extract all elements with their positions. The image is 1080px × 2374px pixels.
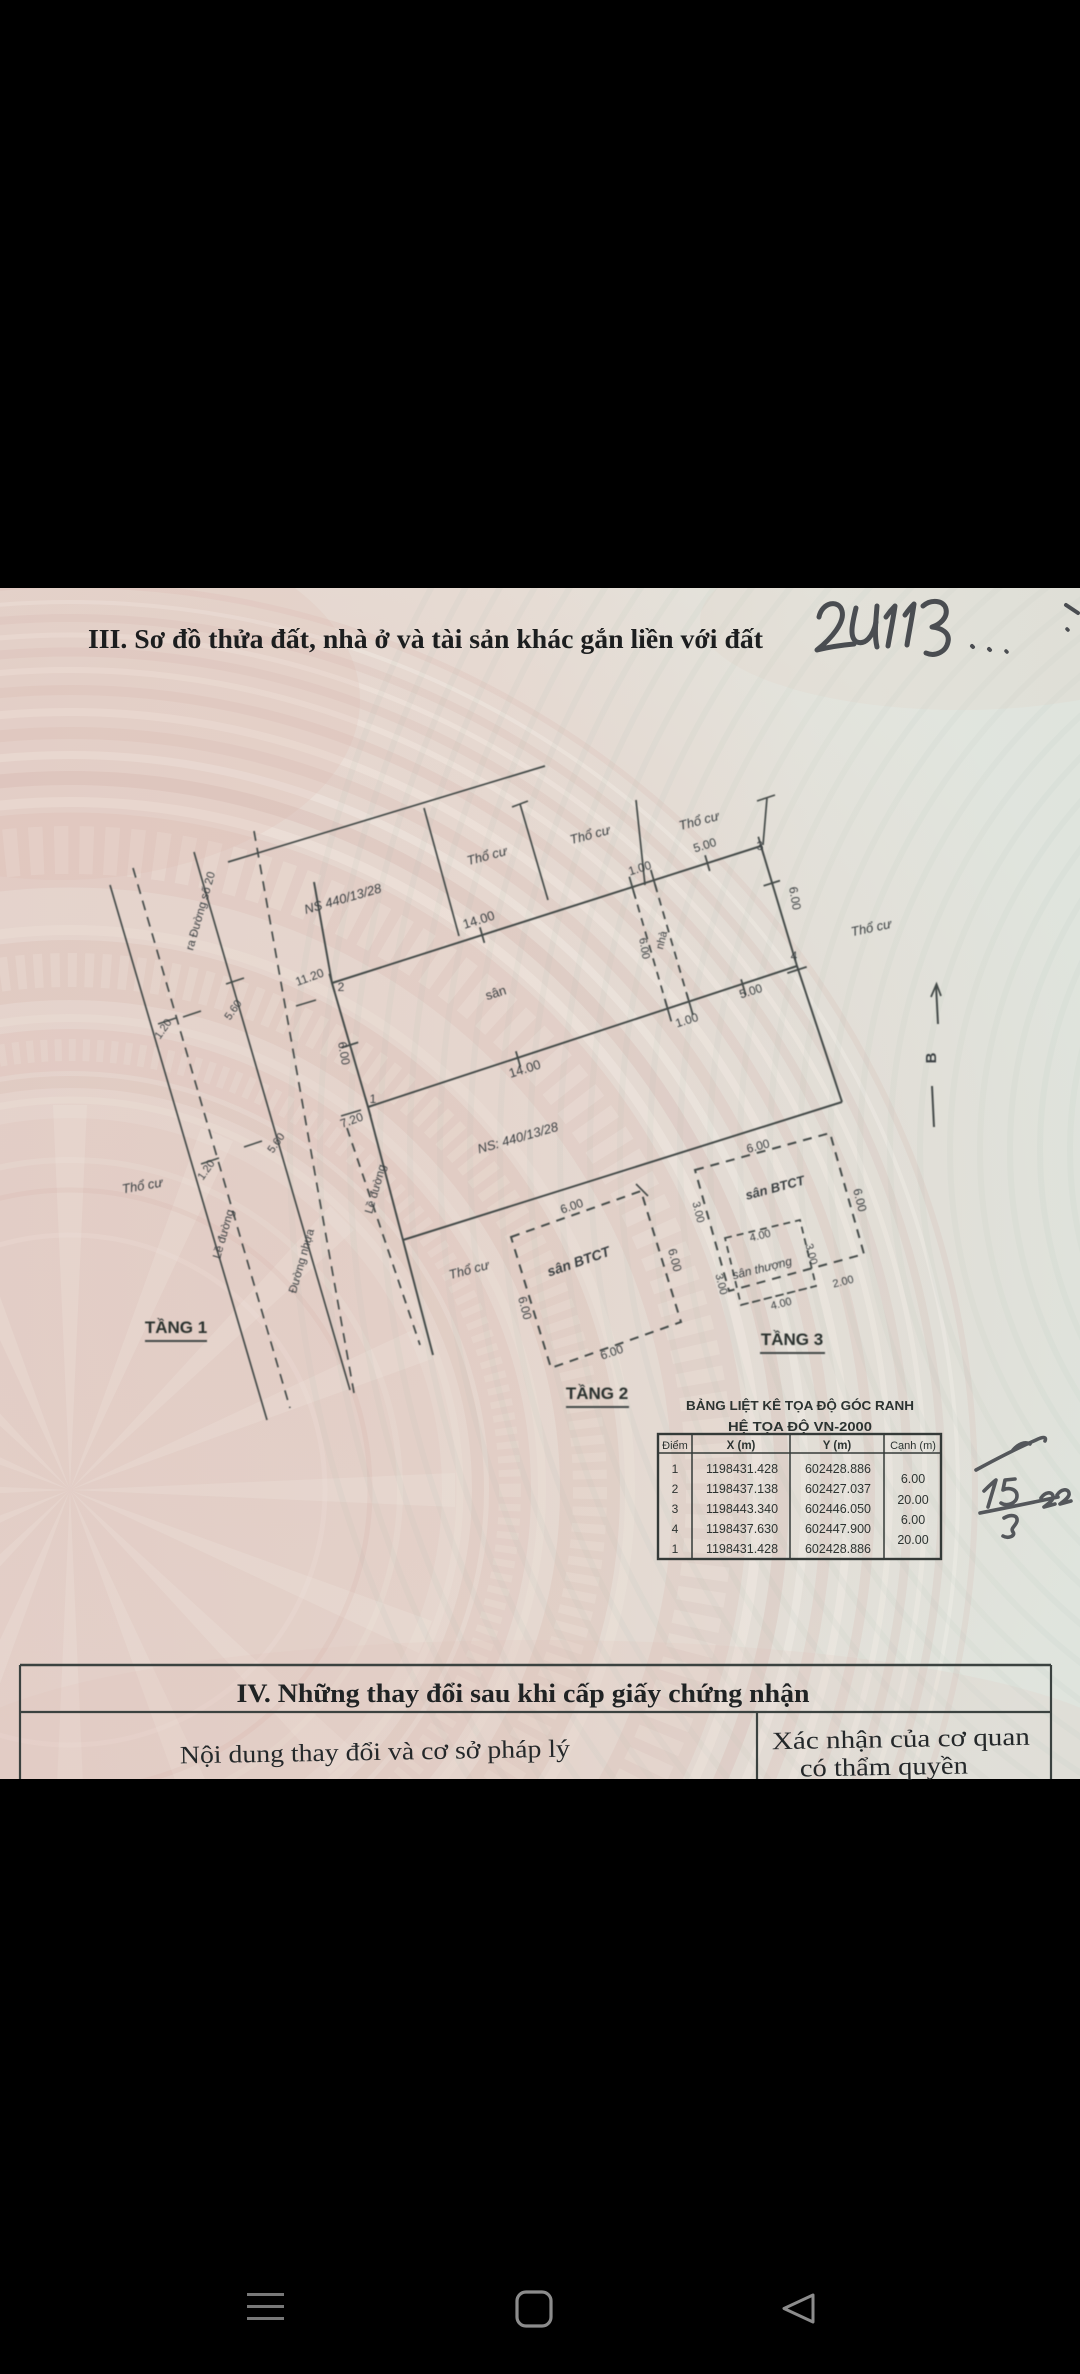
svg-text:6.00: 6.00 (901, 1472, 925, 1486)
svg-text:602428.886: 602428.886 (805, 1542, 871, 1556)
svg-text:III. Sơ đồ thửa đất, nhà ở và: III. Sơ đồ thửa đất, nhà ở và tài sản kh… (88, 624, 763, 654)
svg-text:TẦNG 2: TẦNG 2 (566, 1384, 628, 1403)
svg-text:1: 1 (370, 1092, 377, 1106)
svg-text:3: 3 (757, 839, 764, 853)
svg-text:1198431.428: 1198431.428 (706, 1462, 778, 1476)
svg-text:2: 2 (672, 1482, 679, 1496)
svg-text:có thẩm quyền: có thẩm quyền (800, 1753, 969, 1783)
svg-text:1198437.138: 1198437.138 (706, 1482, 778, 1496)
svg-text:HỆ TỌA ĐỘ VN-2000: HỆ TỌA ĐỘ VN-2000 (728, 1419, 872, 1434)
svg-text:4: 4 (791, 949, 798, 963)
svg-text:1198443.340: 1198443.340 (706, 1502, 778, 1516)
svg-text:602446.050: 602446.050 (805, 1502, 871, 1516)
svg-text:3: 3 (672, 1502, 679, 1516)
svg-text:602427.037: 602427.037 (805, 1482, 871, 1496)
svg-text:2: 2 (338, 980, 345, 994)
svg-text:B: B (923, 1052, 940, 1063)
svg-text:TẦNG 3: TẦNG 3 (761, 1330, 823, 1349)
svg-text:1: 1 (672, 1462, 679, 1476)
svg-text:1198437.630: 1198437.630 (706, 1522, 778, 1536)
svg-text:TẦNG 1: TẦNG 1 (145, 1318, 207, 1337)
svg-text:X (m): X (m) (727, 1440, 756, 1452)
svg-text:BẢNG LIỆT KÊ TỌA ĐỘ GÓC RANH: BẢNG LIỆT KÊ TỌA ĐỘ GÓC RANH (686, 1398, 914, 1413)
svg-text:Điểm: Điểm (662, 1440, 688, 1452)
svg-text:Xác nhận của cơ quan: Xác nhận của cơ quan (772, 1724, 1031, 1756)
svg-text:20.00: 20.00 (897, 1533, 928, 1547)
svg-text:1: 1 (672, 1542, 679, 1556)
svg-text:Cạnh (m): Cạnh (m) (890, 1440, 936, 1452)
svg-text:Y (m): Y (m) (823, 1440, 852, 1452)
svg-text:1198431.428: 1198431.428 (706, 1542, 778, 1556)
svg-text:602447.900: 602447.900 (805, 1522, 871, 1536)
svg-text:6.00: 6.00 (901, 1513, 925, 1527)
svg-text:602428.886: 602428.886 (805, 1462, 871, 1476)
svg-text:4: 4 (672, 1522, 679, 1536)
svg-text:20.00: 20.00 (897, 1493, 928, 1507)
svg-text:IV. Những thay đổi sau khi cấp: IV. Những thay đổi sau khi cấp giấy chứn… (237, 1679, 811, 1708)
